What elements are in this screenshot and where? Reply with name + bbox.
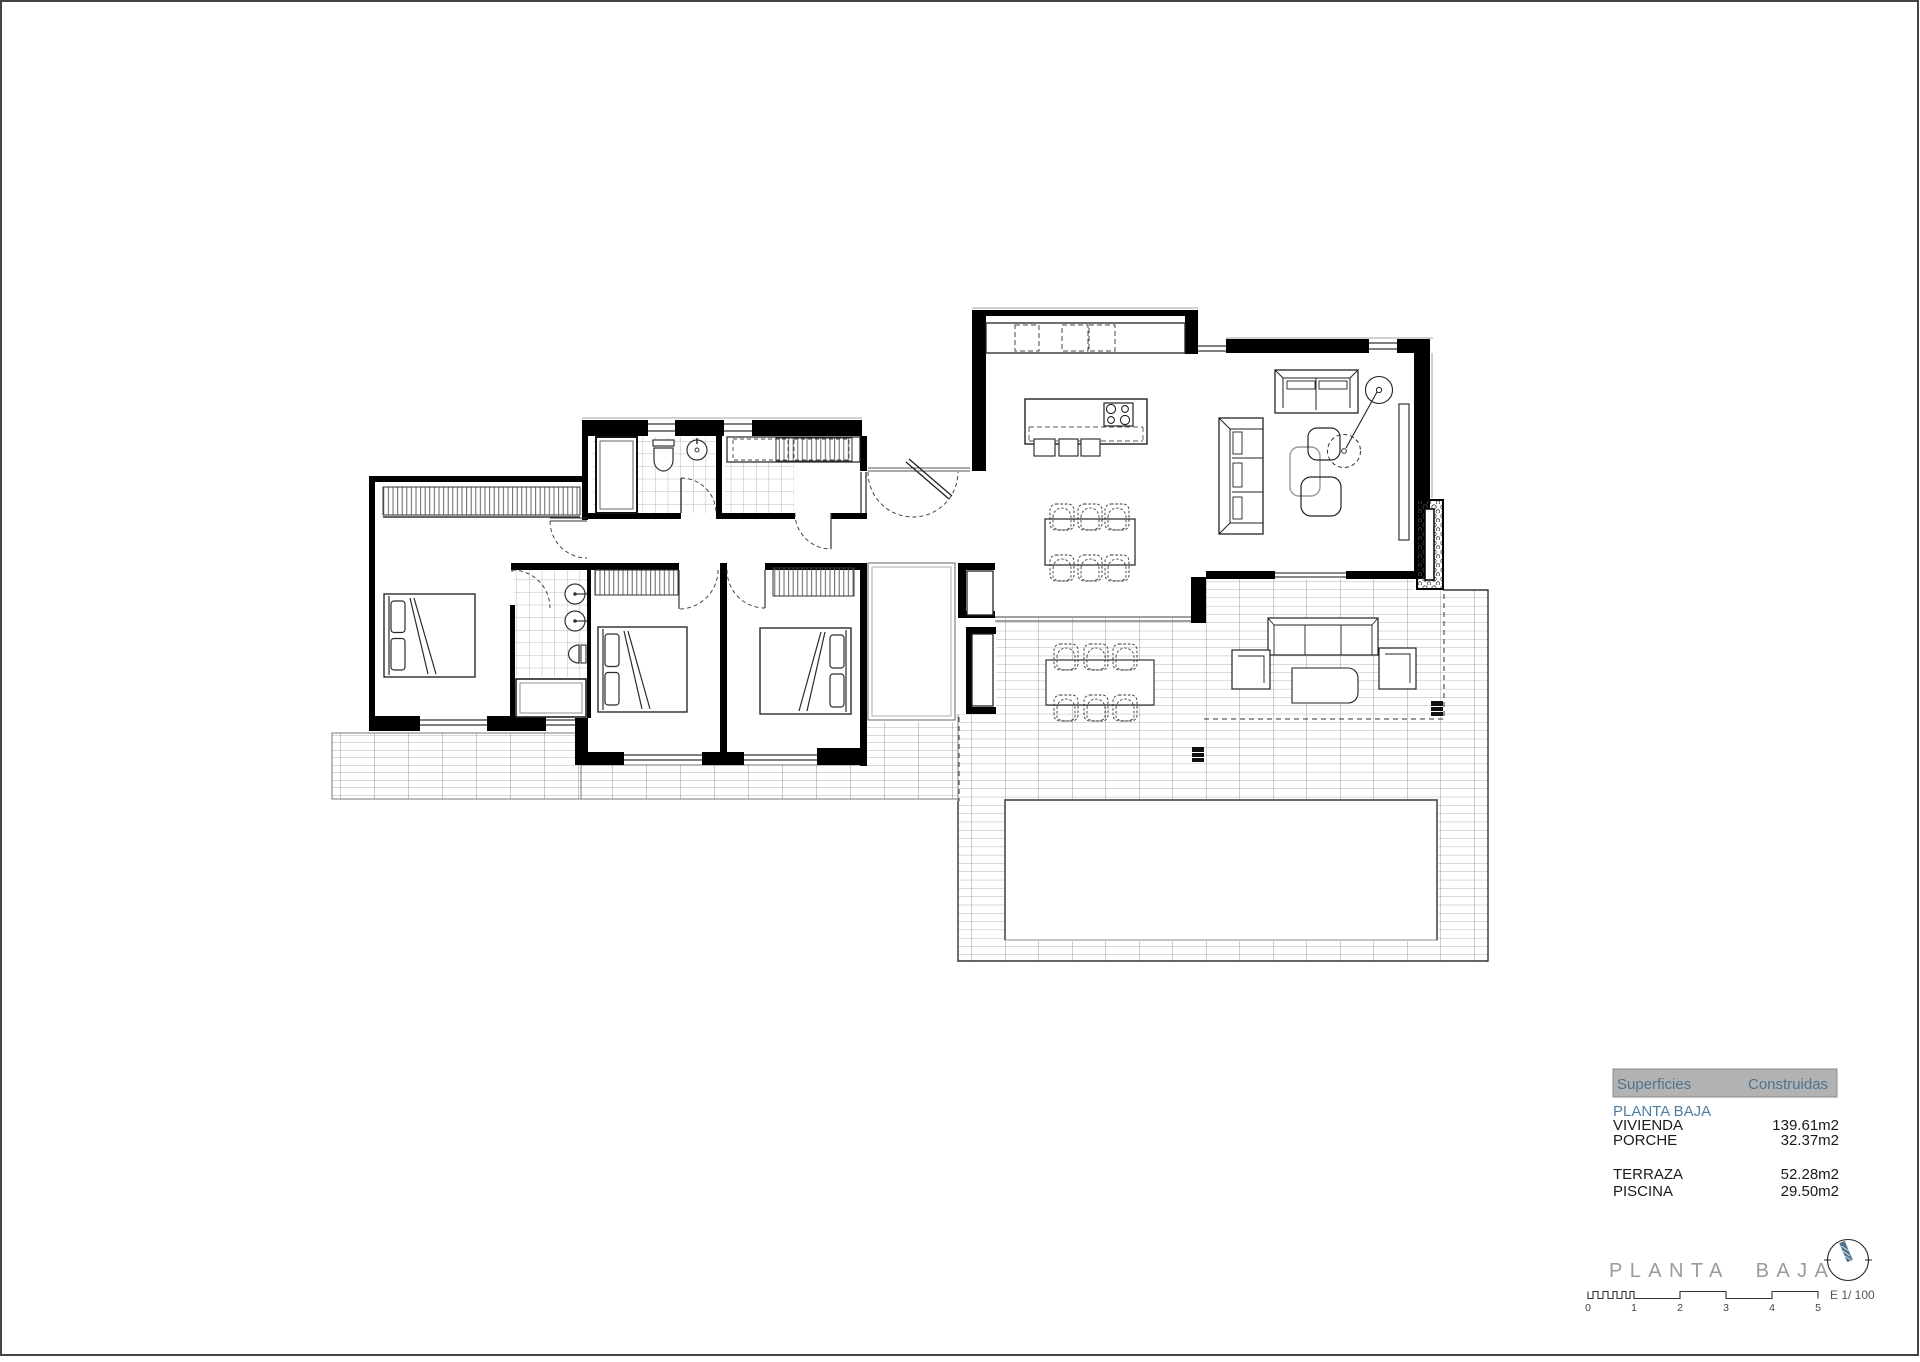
svg-text:Construidas: Construidas [1748, 1076, 1828, 1093]
svg-text:Superficies: Superficies [1617, 1076, 1691, 1093]
svg-text:3: 3 [1723, 1302, 1729, 1314]
svg-text:5: 5 [1815, 1302, 1821, 1314]
svg-text:TERRAZA: TERRAZA [1613, 1166, 1683, 1183]
svg-text:0: 0 [1585, 1302, 1591, 1314]
svg-text:PORCHE: PORCHE [1613, 1132, 1677, 1149]
svg-text:PLANTA BAJA: PLANTA BAJA [1609, 1260, 1835, 1282]
svg-text:E 1/ 100: E 1/ 100 [1830, 1288, 1875, 1302]
svg-text:32.37m2: 32.37m2 [1781, 1132, 1839, 1149]
svg-text:4: 4 [1769, 1302, 1775, 1314]
svg-text:52.28m2: 52.28m2 [1781, 1166, 1839, 1183]
svg-text:29.50m2: 29.50m2 [1781, 1183, 1839, 1200]
svg-text:2: 2 [1677, 1302, 1683, 1314]
svg-text:1: 1 [1631, 1302, 1637, 1314]
svg-text:PISCINA: PISCINA [1613, 1183, 1673, 1200]
